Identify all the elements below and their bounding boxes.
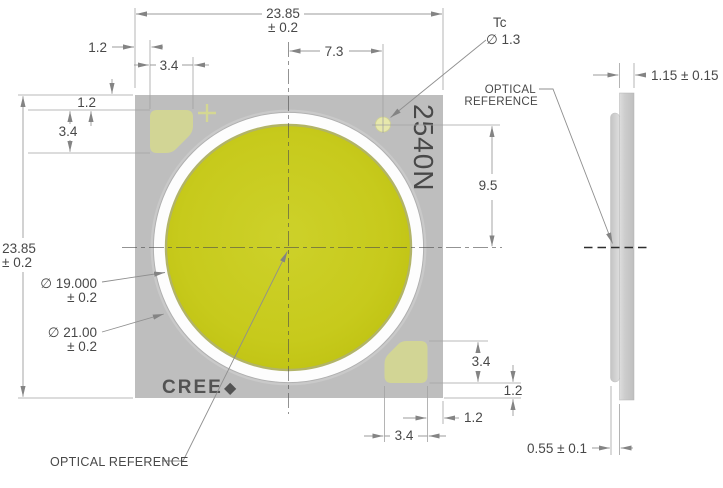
dim-pad-size-br-v-value: 3.4 <box>472 354 491 369</box>
dim-tc-offset-y-value: 9.5 <box>479 178 498 193</box>
dim-pad-size-br-horizontal: 3.4 <box>364 428 446 443</box>
dim-overall-height-tol: ± 0.2 <box>2 255 32 270</box>
dim-pad-size-br-vertical: 3.4 <box>472 342 491 382</box>
dim-pad-margin-br-vertical: 1.2 <box>504 365 523 416</box>
side-view <box>584 93 650 400</box>
side-substrate <box>620 93 635 400</box>
callout-optical-reference-side: OPTICAL REFERENCE <box>464 84 612 244</box>
dim-pad-margin-top: 1.2 <box>88 40 163 55</box>
dim-overall-width-value: 23.85 <box>266 6 300 21</box>
dim-tc-offset-x-value: 7.3 <box>325 44 344 59</box>
dim-tc-offset-y: 9.5 <box>479 126 498 246</box>
brand-logo-diamond-icon: ◆ <box>224 380 237 397</box>
tc-label: Tc <box>493 15 507 30</box>
dim-lens-height: 0.55 ± 0.1 <box>527 441 633 456</box>
dim-pad-margin-left-value: 1.2 <box>77 95 96 110</box>
mechanical-drawing-canvas: CREE ◆ 2540N 23.85 ± 0.2 <box>0 0 723 488</box>
dim-overall-height-value: 23.85 <box>2 241 36 256</box>
les-diameter-value: ∅ 19.000 <box>40 276 97 291</box>
part-marking: 2540N <box>408 104 439 192</box>
dim-pad-margin-br-h-value: 1.2 <box>464 410 483 425</box>
dim-overall-width-tol: ± 0.2 <box>268 20 298 35</box>
dim-pad-size-left-value: 3.4 <box>59 124 78 139</box>
dim-pad-size-top: 3.4 <box>134 58 209 73</box>
led-package-drawing: CREE ◆ 2540N 23.85 ± 0.2 <box>0 0 723 488</box>
les-diameter-tol: ± 0.2 <box>67 290 97 305</box>
ring-diameter-value: ∅ 21.00 <box>48 325 97 340</box>
dim-pad-margin-br-v-value: 1.2 <box>504 383 523 398</box>
tc-diameter: ∅ 1.3 <box>486 32 520 47</box>
dim-pad-size-top-value: 3.4 <box>160 58 179 73</box>
dim-overall-thickness-value: 1.15 ± 0.15 <box>651 68 718 83</box>
ring-diameter-tol: ± 0.2 <box>67 339 97 354</box>
optical-reference-side-line1: OPTICAL <box>485 84 537 96</box>
dim-pad-size-left: 3.4 <box>59 111 78 152</box>
brand-logo-text: CREE <box>162 377 223 398</box>
dim-tc-offset-x: 7.3 <box>290 44 382 59</box>
optical-reference-side-line2: REFERENCE <box>464 96 538 108</box>
dim-overall-height: 23.85 ± 0.2 <box>2 96 36 397</box>
dim-pad-margin-top-value: 1.2 <box>88 40 107 55</box>
dim-overall-width: 23.85 ± 0.2 <box>136 6 442 35</box>
dim-pad-margin-left: 1.2 <box>77 79 112 126</box>
optical-reference-label: OPTICAL REFERENCE <box>50 455 189 469</box>
dim-lens-height-value: 0.55 ± 0.1 <box>527 441 587 456</box>
dim-overall-thickness: 1.15 ± 0.15 <box>593 68 718 83</box>
dim-pad-size-br-h-value: 3.4 <box>395 428 414 443</box>
